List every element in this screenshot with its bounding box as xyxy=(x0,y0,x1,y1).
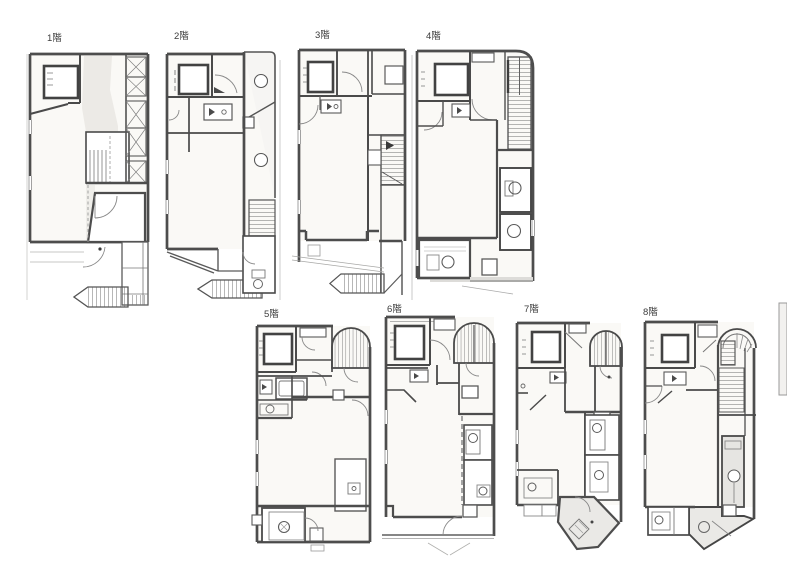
svg-text:5階: 5階 xyxy=(264,309,279,320)
svg-text:7階: 7階 xyxy=(524,304,539,315)
svg-text:4階: 4階 xyxy=(426,31,441,42)
svg-text:3階: 3階 xyxy=(315,30,330,41)
svg-text:1階: 1階 xyxy=(47,33,62,44)
svg-text:6階: 6階 xyxy=(387,304,402,315)
svg-text:8階: 8階 xyxy=(643,307,658,318)
svg-text:2階: 2階 xyxy=(174,31,189,42)
